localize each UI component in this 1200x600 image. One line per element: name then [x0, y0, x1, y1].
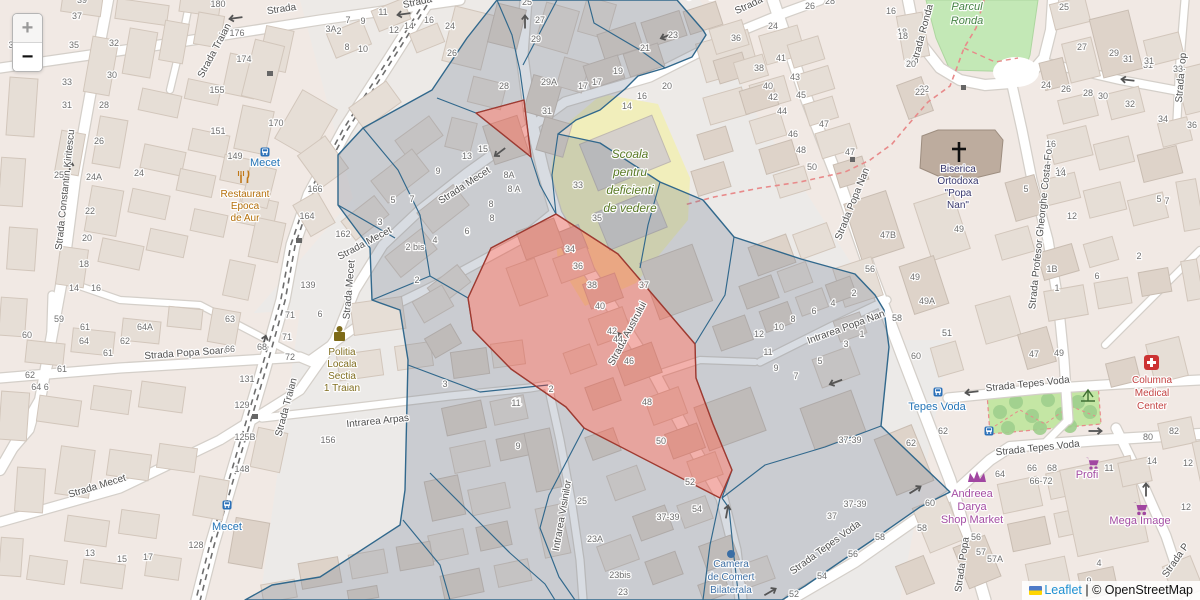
svg-text:57: 57 [976, 547, 986, 557]
svg-text:25: 25 [54, 170, 64, 180]
svg-text:13: 13 [85, 548, 95, 558]
svg-text:24: 24 [1041, 80, 1051, 90]
svg-text:15: 15 [117, 554, 127, 564]
svg-text:38: 38 [587, 280, 597, 290]
svg-text:45: 45 [796, 90, 806, 100]
svg-text:19: 19 [613, 66, 623, 76]
svg-text:Center: Center [1137, 401, 1168, 412]
svg-text:56: 56 [971, 532, 981, 542]
svg-text:4: 4 [1096, 558, 1101, 568]
svg-text:24: 24 [134, 168, 144, 178]
svg-text:29A: 29A [541, 77, 557, 87]
svg-text:14: 14 [622, 101, 632, 111]
svg-text:11: 11 [763, 347, 772, 357]
svg-text:3: 3 [377, 217, 382, 227]
svg-text:20: 20 [906, 59, 916, 69]
svg-text:3: 3 [843, 339, 848, 349]
svg-text:29: 29 [1109, 48, 1119, 58]
svg-text:11: 11 [511, 398, 520, 408]
svg-text:34: 34 [1158, 114, 1168, 124]
svg-text:31: 31 [62, 100, 72, 110]
svg-text:36: 36 [573, 261, 583, 271]
svg-text:52: 52 [685, 477, 695, 487]
svg-text:de Comert: de Comert [708, 572, 755, 583]
svg-text:9: 9 [435, 166, 440, 176]
svg-text:63: 63 [225, 314, 235, 324]
svg-text:Sectia: Sectia [328, 371, 356, 382]
svg-text:128: 128 [188, 540, 203, 550]
svg-text:7: 7 [345, 15, 350, 25]
svg-text:8: 8 [489, 213, 494, 223]
svg-text:26: 26 [447, 48, 457, 58]
svg-text:pentru: pentru [612, 165, 647, 179]
svg-text:25: 25 [522, 0, 532, 7]
svg-text:16: 16 [637, 91, 647, 101]
svg-text:26: 26 [1061, 84, 1071, 94]
svg-text:151: 151 [210, 126, 225, 136]
svg-text:51: 51 [942, 328, 952, 338]
svg-text:40: 40 [763, 81, 773, 91]
svg-text:31: 31 [542, 106, 552, 116]
svg-text:de vedere: de vedere [603, 201, 657, 215]
svg-text:2: 2 [414, 275, 419, 285]
svg-text:2 bis: 2 bis [405, 242, 425, 252]
svg-text:9: 9 [515, 441, 520, 451]
svg-text:46: 46 [788, 129, 798, 139]
svg-text:25: 25 [577, 496, 587, 506]
svg-text:2: 2 [1136, 251, 1141, 261]
svg-text:47: 47 [845, 147, 855, 157]
svg-text:14: 14 [404, 21, 414, 31]
svg-text:Profi: Profi [1076, 469, 1099, 481]
svg-text:Locala: Locala [327, 359, 357, 370]
svg-text:47: 47 [819, 119, 829, 129]
svg-text:deficienti: deficienti [606, 183, 654, 197]
svg-text:44: 44 [777, 106, 787, 116]
svg-text:23: 23 [668, 30, 678, 40]
svg-text:4: 4 [830, 298, 835, 308]
svg-text:71: 71 [285, 310, 295, 320]
svg-text:2: 2 [851, 288, 856, 298]
svg-text:32: 32 [109, 38, 119, 48]
svg-text:155: 155 [209, 85, 224, 95]
svg-text:Darya: Darya [957, 501, 987, 513]
svg-text:164: 164 [299, 211, 314, 221]
svg-text:9: 9 [360, 16, 365, 26]
svg-text:23bis: 23bis [609, 570, 631, 580]
svg-text:16: 16 [424, 15, 434, 25]
svg-text:Tepes Voda: Tepes Voda [908, 401, 966, 413]
svg-text:6: 6 [464, 226, 469, 236]
svg-text:37-39: 37-39 [838, 435, 861, 445]
svg-text:44: 44 [613, 334, 623, 344]
svg-text:129: 129 [234, 400, 249, 410]
svg-text:28: 28 [825, 0, 835, 6]
svg-text:20: 20 [82, 233, 92, 243]
svg-text:1: 1 [1054, 283, 1059, 293]
svg-text:17: 17 [592, 77, 602, 87]
svg-text:28: 28 [499, 81, 509, 91]
svg-text:48: 48 [796, 145, 806, 155]
svg-text:12: 12 [1183, 458, 1193, 468]
svg-text:25: 25 [1059, 2, 1069, 12]
svg-text:68: 68 [1047, 463, 1057, 473]
svg-text:"Popa: "Popa [945, 188, 972, 199]
svg-text:1: 1 [859, 329, 864, 339]
svg-text:4: 4 [432, 235, 437, 245]
svg-text:6: 6 [1094, 271, 1099, 281]
svg-text:50: 50 [807, 162, 817, 172]
svg-text:42: 42 [768, 92, 778, 102]
svg-text:64: 64 [995, 469, 1005, 479]
svg-text:12: 12 [1181, 502, 1191, 512]
svg-text:8: 8 [686, 0, 691, 2]
svg-text:28: 28 [99, 100, 109, 110]
svg-text:58: 58 [917, 523, 927, 533]
svg-text:180: 180 [210, 0, 225, 9]
svg-text:12: 12 [754, 329, 764, 339]
svg-text:64 6: 64 6 [31, 382, 49, 392]
svg-text:33: 33 [62, 77, 72, 87]
svg-text:174: 174 [236, 54, 251, 64]
svg-text:17: 17 [578, 81, 588, 91]
svg-text:156: 156 [320, 435, 335, 445]
svg-text:56: 56 [848, 549, 858, 559]
svg-text:71: 71 [282, 332, 292, 342]
svg-text:82: 82 [1169, 426, 1179, 436]
svg-text:23: 23 [618, 587, 628, 597]
svg-text:Camera: Camera [713, 559, 749, 570]
svg-text:23A: 23A [587, 534, 603, 544]
svg-text:80: 80 [1143, 432, 1153, 442]
svg-text:12: 12 [1067, 211, 1077, 221]
svg-text:29: 29 [531, 34, 541, 44]
svg-text:50: 50 [656, 436, 666, 446]
svg-text:7: 7 [409, 194, 414, 204]
svg-text:49: 49 [910, 272, 920, 282]
svg-text:60: 60 [22, 330, 32, 340]
svg-text:28: 28 [1083, 88, 1093, 98]
svg-text:24A: 24A [86, 172, 102, 182]
svg-text:57A: 57A [987, 554, 1003, 564]
svg-text:10: 10 [358, 44, 368, 54]
svg-text:58: 58 [892, 313, 902, 323]
svg-text:8: 8 [790, 314, 795, 324]
svg-text:148: 148 [234, 464, 249, 474]
svg-text:6: 6 [317, 309, 322, 319]
svg-text:36: 36 [731, 33, 741, 43]
svg-text:39: 39 [77, 0, 87, 5]
svg-text:Mega Image: Mega Image [1109, 515, 1170, 527]
svg-text:49A: 49A [919, 296, 935, 306]
svg-text:8: 8 [344, 42, 349, 52]
svg-text:43: 43 [790, 72, 800, 82]
svg-text:10: 10 [774, 322, 784, 332]
svg-text:62: 62 [906, 438, 916, 448]
svg-text:2: 2 [548, 384, 553, 394]
svg-text:B: B [709, 0, 715, 2]
svg-text:61: 61 [57, 364, 67, 374]
svg-text:49: 49 [1054, 348, 1064, 358]
svg-text:11: 11 [378, 7, 387, 17]
svg-text:6: 6 [811, 306, 816, 316]
svg-text:Shop Market: Shop Market [941, 514, 1003, 526]
svg-text:41: 41 [776, 53, 786, 63]
svg-text:131: 131 [239, 374, 254, 384]
svg-text:26: 26 [94, 136, 104, 146]
svg-text:35: 35 [592, 213, 602, 223]
svg-text:20: 20 [662, 81, 672, 91]
svg-text:49: 49 [954, 224, 964, 234]
svg-text:8A: 8A [503, 170, 514, 180]
svg-text:12: 12 [389, 25, 399, 35]
svg-text:24: 24 [768, 21, 778, 31]
svg-text:Mecet: Mecet [250, 157, 280, 169]
svg-text:33: 33 [573, 180, 583, 190]
svg-text:33: 33 [1173, 64, 1183, 74]
svg-text:16: 16 [1046, 139, 1056, 149]
svg-text:24: 24 [445, 21, 455, 31]
svg-text:5: 5 [390, 195, 395, 205]
svg-text:Bilaterala: Bilaterala [710, 585, 752, 596]
svg-text:31: 31 [1123, 54, 1133, 64]
svg-text:3: 3 [442, 379, 447, 389]
svg-text:62: 62 [25, 370, 35, 380]
svg-text:22: 22 [85, 206, 95, 216]
svg-text:37-39: 37-39 [843, 499, 866, 509]
svg-text:Restaurant: Restaurant [221, 189, 270, 200]
svg-text:7: 7 [1164, 196, 1169, 206]
svg-text:Nan": Nan" [947, 200, 969, 211]
svg-text:Columna: Columna [1132, 375, 1172, 386]
svg-text:17: 17 [143, 552, 153, 562]
svg-text:15: 15 [478, 144, 488, 154]
svg-text:21: 21 [640, 43, 650, 53]
svg-text:62: 62 [938, 426, 948, 436]
svg-text:34: 34 [565, 244, 575, 254]
svg-text:61: 61 [103, 348, 113, 358]
svg-text:30: 30 [107, 70, 117, 80]
svg-text:14: 14 [1056, 168, 1066, 178]
svg-text:46: 46 [624, 356, 634, 366]
svg-text:14: 14 [69, 283, 79, 293]
svg-text:64: 64 [79, 336, 89, 346]
svg-text:30: 30 [1098, 91, 1108, 101]
svg-text:149: 149 [227, 151, 242, 161]
svg-text:62: 62 [120, 336, 130, 346]
svg-text:Ronda: Ronda [951, 15, 983, 27]
svg-text:8 A: 8 A [507, 184, 520, 194]
svg-text:Medical: Medical [1135, 388, 1169, 399]
svg-text:170: 170 [268, 118, 283, 128]
svg-text:37: 37 [639, 280, 649, 290]
svg-text:47B: 47B [880, 230, 896, 240]
svg-text:54: 54 [692, 504, 702, 514]
svg-text:61: 61 [80, 322, 90, 332]
svg-text:16: 16 [886, 6, 896, 16]
svg-text:36: 36 [1187, 120, 1197, 130]
svg-text:1 Traian: 1 Traian [324, 383, 360, 394]
svg-text:3A: 3A [325, 24, 336, 34]
svg-text:26: 26 [805, 1, 815, 11]
svg-text:162: 162 [335, 229, 350, 239]
svg-text:59: 59 [54, 314, 64, 324]
svg-text:Biserica: Biserica [940, 164, 976, 175]
svg-text:47: 47 [1029, 349, 1039, 359]
svg-text:58: 58 [875, 532, 885, 542]
svg-text:64A: 64A [137, 322, 153, 332]
svg-text:Epoca: Epoca [231, 201, 260, 212]
svg-text:37-39: 37-39 [656, 512, 679, 522]
svg-text:37: 37 [72, 11, 82, 21]
svg-text:35: 35 [69, 40, 79, 50]
svg-text:Scoala: Scoala [612, 147, 649, 161]
svg-text:31: 31 [1144, 56, 1154, 66]
svg-text:8: 8 [488, 199, 493, 209]
svg-text:Andreea: Andreea [951, 488, 993, 500]
svg-text:176: 176 [229, 28, 244, 38]
svg-text:38: 38 [754, 63, 764, 73]
svg-text:Politia: Politia [328, 347, 356, 358]
svg-text:9: 9 [773, 363, 778, 373]
svg-text:72: 72 [285, 352, 295, 362]
svg-text:11: 11 [1104, 463, 1113, 473]
svg-text:32: 32 [1125, 99, 1135, 109]
svg-text:1B: 1B [1046, 264, 1057, 274]
svg-text:54: 54 [817, 571, 827, 581]
svg-text:27: 27 [535, 15, 545, 25]
svg-text:18: 18 [79, 259, 89, 269]
svg-text:60: 60 [911, 351, 921, 361]
svg-text:Parcul: Parcul [951, 1, 983, 13]
svg-text:5: 5 [817, 356, 822, 366]
svg-text:139: 139 [300, 280, 315, 290]
svg-text:66-72: 66-72 [1029, 476, 1052, 486]
svg-text:66: 66 [225, 344, 235, 354]
svg-text:16: 16 [91, 283, 101, 293]
svg-text:166: 166 [307, 184, 322, 194]
svg-text:27: 27 [1077, 42, 1087, 52]
svg-text:66: 66 [1027, 463, 1037, 473]
svg-text:48: 48 [642, 397, 652, 407]
svg-text:Ortodoxa: Ortodoxa [937, 176, 979, 187]
svg-text:5: 5 [1023, 184, 1028, 194]
svg-text:de Aur: de Aur [231, 213, 261, 224]
svg-text:37: 37 [827, 511, 837, 521]
svg-text:22: 22 [915, 87, 925, 97]
svg-text:52: 52 [789, 589, 799, 599]
svg-text:68: 68 [257, 342, 267, 352]
svg-text:125B: 125B [234, 432, 255, 442]
svg-text:Mecet: Mecet [212, 521, 242, 533]
svg-text:7: 7 [793, 371, 798, 381]
svg-text:40: 40 [595, 301, 605, 311]
svg-text:13: 13 [462, 151, 472, 161]
svg-text:14: 14 [1147, 456, 1157, 466]
svg-text:56: 56 [865, 264, 875, 274]
svg-text:18: 18 [898, 31, 908, 41]
svg-text:5: 5 [1156, 194, 1161, 204]
svg-text:60: 60 [925, 498, 935, 508]
svg-text:2: 2 [336, 26, 341, 36]
